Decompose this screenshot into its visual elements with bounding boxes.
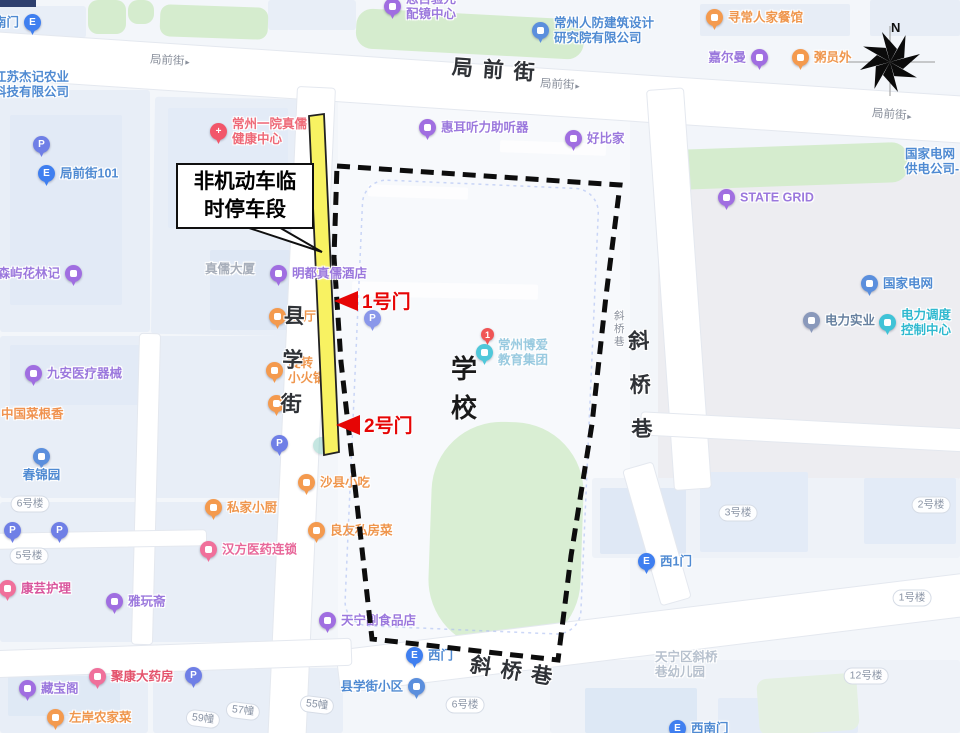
poi-label: 汉方医药连锁 [222,542,297,557]
poi-pin-purple-icon[interactable] [718,189,735,206]
map-poi: 电力调度控制中心 [879,314,896,331]
school-label-line1: 学 [436,350,492,389]
poi-label: 藏宝阁 [41,681,79,696]
poi-pin-orange-icon[interactable] [205,499,222,516]
poi-label: 康芸护理 [21,581,71,596]
map-poi: P [33,136,50,153]
poi-pin-purple-icon[interactable] [419,119,436,136]
poi-pin-blue-icon[interactable] [408,678,425,695]
map-poi: 嘉尔曼 [751,49,768,66]
street-name-label: 局前街▸ [871,105,912,124]
poi-label: 常州一院真儒健康中心 [232,117,307,147]
map-canvas[interactable]: E南门江苏杰记农业科技有限公司PE局前街101森屿花林记+常州一院真儒健康中心思… [0,0,960,733]
map-poi: 中国菜根香 [1,407,18,424]
poi-pin-teal-icon[interactable] [879,314,896,331]
poi-label: 寻常人家餐馆 [728,10,803,25]
poi-pin-orange-icon[interactable] [706,9,723,26]
poi-label: 西1门 [660,554,692,569]
sports-field [426,419,586,652]
poi-label: 常州博爱教育集团 [498,338,548,368]
poi-label: 真儒大厦 [205,262,222,277]
school-label: 学 校 [436,350,492,428]
poi-pin-pink-icon[interactable] [0,580,16,597]
gate-arrow-icon [334,291,358,311]
poi-label: 雅玩斋 [128,594,166,609]
poi-pin-blue-icon[interactable] [532,22,549,39]
poi-pin-purple-icon[interactable] [65,265,82,282]
poi-pin-orange-icon[interactable] [266,362,283,379]
poi-label: 天宁副食品店 [341,613,416,628]
map-poi [313,437,330,454]
poi-label: 沙县小吃 [320,475,370,490]
map-poi: 寻常人家餐馆 [706,9,723,26]
street-name-label: 局前街▸ [150,51,191,69]
poi-pin-parking-icon[interactable]: P [51,522,68,539]
map-poi: 左岸农家菜 [47,709,64,726]
poi-label: 局前街101 [60,166,118,181]
map-poi: 江苏杰记农业科技有限公司 [0,70,11,87]
map-poi: 常州人防建筑设计研究院有限公司 [532,22,549,39]
map-poi: 国家电网 [861,275,878,292]
poi-pin-purple-icon[interactable] [25,365,42,382]
building-block [268,0,356,30]
building-number-badge: 3号楼 [719,505,758,522]
gate-arrow-icon [336,415,360,435]
building-number-badge: 1号楼 [893,590,932,607]
poi-label: 县学街小区 [340,679,403,694]
green-area [756,673,860,733]
green-area [159,4,268,40]
poi-pin-parking-icon[interactable]: P [33,136,50,153]
poi-pin-exit-icon[interactable]: E [38,165,55,182]
building-number-badge: 2号楼 [912,497,951,514]
street-name-label: 局 前 街 [451,51,538,87]
street-name-label: 斜桥巷 [628,325,654,458]
map-poi: E南门 [24,14,41,31]
map-poi: 天宁区斜桥巷幼儿园 [655,650,672,667]
map-poi: 明都真儒酒店 [270,265,287,282]
poi-pin-parking-icon[interactable]: P [271,435,288,452]
poi-pin-purple-icon[interactable] [751,49,768,66]
map-poi: 惠耳听力助听器 [419,119,436,136]
poi-pin-blue-icon[interactable] [861,275,878,292]
poi-pin-pink-icon[interactable] [200,541,217,558]
poi-label: 电力实业 [825,313,875,328]
gate-2-marker: 2号门 [336,411,413,438]
map-poi: 沙县小吃 [298,474,315,491]
map-poi: P [185,667,202,684]
map-poi: 县学街小区 [408,678,425,695]
poi-pin-hospital-icon[interactable]: + [210,123,227,140]
poi-label: 江苏杰记农业科技有限公司 [0,70,11,100]
building-number-badge: 5号楼 [10,548,49,565]
building-number-badge: 6号楼 [11,496,50,513]
map-poi: 春锦园 [33,448,50,465]
map-poi: P [51,522,68,539]
compass-north-label: N [891,20,900,35]
poi-label: 春锦园 [23,468,61,483]
map-poi: E西1门 [638,553,655,570]
poi-pin-exit-icon[interactable]: E [406,647,423,664]
map-poi: 藏宝阁 [19,680,36,697]
green-area [88,0,126,34]
school-label-line2: 校 [436,389,492,428]
compass-rose-icon [840,16,940,106]
poi-pin-slate-icon[interactable] [803,312,820,329]
map-poi: P [4,522,21,539]
poi-label: 明都真儒酒店 [292,266,367,281]
poi-pin-blue-icon[interactable] [33,448,50,465]
map-poi: E局前街101 [38,165,55,182]
map-poi: 康芸护理 [0,580,16,597]
map-poi: 聚康大药房 [89,668,106,685]
poi-pin-orange-icon[interactable] [298,474,315,491]
poi-label: 良友私房菜 [330,523,393,538]
green-area [667,142,908,190]
poi-pin-orange-icon[interactable] [308,522,325,539]
poi-pin-purple-icon[interactable] [565,130,582,147]
poi-label: 天宁区斜桥巷幼儿园 [655,650,672,680]
poi-label: 国家电网供电公司- [905,147,922,177]
poi-label: 电力调度控制中心 [901,308,951,338]
map-poi: 国家电网供电公司- [905,147,922,164]
street-name-label: 斜桥巷 [614,308,625,347]
map-poi: 天宁副食品店 [319,612,336,629]
poi-pin-exit-icon[interactable]: E [669,720,686,733]
poi-label: 中国菜根香 [1,407,18,422]
map-poi: STATE GRID [718,189,735,206]
map-poi: 雅玩斋 [106,593,123,610]
gate-1-marker: 1号门 [334,287,411,314]
poi-pin-purple-icon[interactable] [270,265,287,282]
poi-pin-purple-icon[interactable] [19,680,36,697]
poi-pin-purple-icon[interactable] [106,593,123,610]
gate-2-label: 2号门 [364,411,413,438]
callout-label: 非机动车临 时停车段 [176,163,314,229]
poi-label: 九安医疗器械 [47,366,122,381]
map-poi: E西南门 [669,720,686,733]
map-poi: P [271,435,288,452]
poi-pin-orange-icon[interactable] [47,709,64,726]
poi-label: 西南门 [691,721,729,733]
map-poi: 真儒大厦 [205,262,222,279]
callout-line1: 非机动车临 [178,168,312,196]
poi-pin-orange-icon[interactable] [792,49,809,66]
poi-pin-parking-icon[interactable]: P [185,667,202,684]
poi-pin-parking-icon[interactable]: P [4,522,21,539]
green-area [128,0,154,24]
poi-label: 思目验光配镜中心 [406,0,456,22]
poi-label: 南门 [0,15,19,30]
poi-label: 左岸农家菜 [69,710,132,725]
poi-label: 常州人防建筑设计研究院有限公司 [554,16,654,46]
poi-label: 好比家 [587,131,625,146]
map-poi: 好比家 [565,130,582,147]
map-poi: E西门 [406,647,423,664]
poi-pin-purple-icon[interactable] [319,612,336,629]
map-poi: 私家小厨 [205,499,222,516]
poi-pin-exit-icon[interactable]: E [638,553,655,570]
road-shield [0,0,36,7]
poi-pin-pink-icon[interactable] [89,668,106,685]
poi-label: 私家小厨 [227,500,277,515]
poi-label: STATE GRID [740,190,814,205]
poi-pin-purple-icon[interactable] [384,0,401,15]
building-number-badge: 6号楼 [446,697,485,714]
callout-line2: 时停车段 [178,196,312,224]
map-poi: 1 [481,328,498,345]
poi-pin-dot-icon[interactable] [313,437,330,454]
poi-label: 森屿花林记 [0,266,60,281]
poi-pin-exit-icon[interactable]: E [24,14,41,31]
poi-pin-red1-icon[interactable]: 1 [481,328,494,341]
map-poi: 森屿花林记 [65,265,82,282]
gate-1-label: 1号门 [362,287,411,314]
poi-label: 西门 [428,648,453,663]
map-poi: +常州一院真儒健康中心 [210,123,227,140]
map-poi: 九安医疗器械 [25,365,42,382]
map-poi: 粥员外 [792,49,809,66]
building-number-badge: 12号楼 [844,668,889,685]
poi-label: 嘉尔曼 [708,50,746,65]
street-name-label: 局前街▸ [540,75,581,93]
map-poi: 汉方医药连锁 [200,541,217,558]
map-poi: 思目验光配镜中心 [384,0,401,15]
map-poi: 旋转小火锅 [266,362,283,379]
poi-label: 国家电网 [883,276,933,291]
poi-label: 惠耳听力助听器 [441,120,529,135]
map-poi: 电力实业 [803,312,820,329]
map-poi: 良友私房菜 [308,522,325,539]
poi-label: 聚康大药房 [111,669,174,684]
